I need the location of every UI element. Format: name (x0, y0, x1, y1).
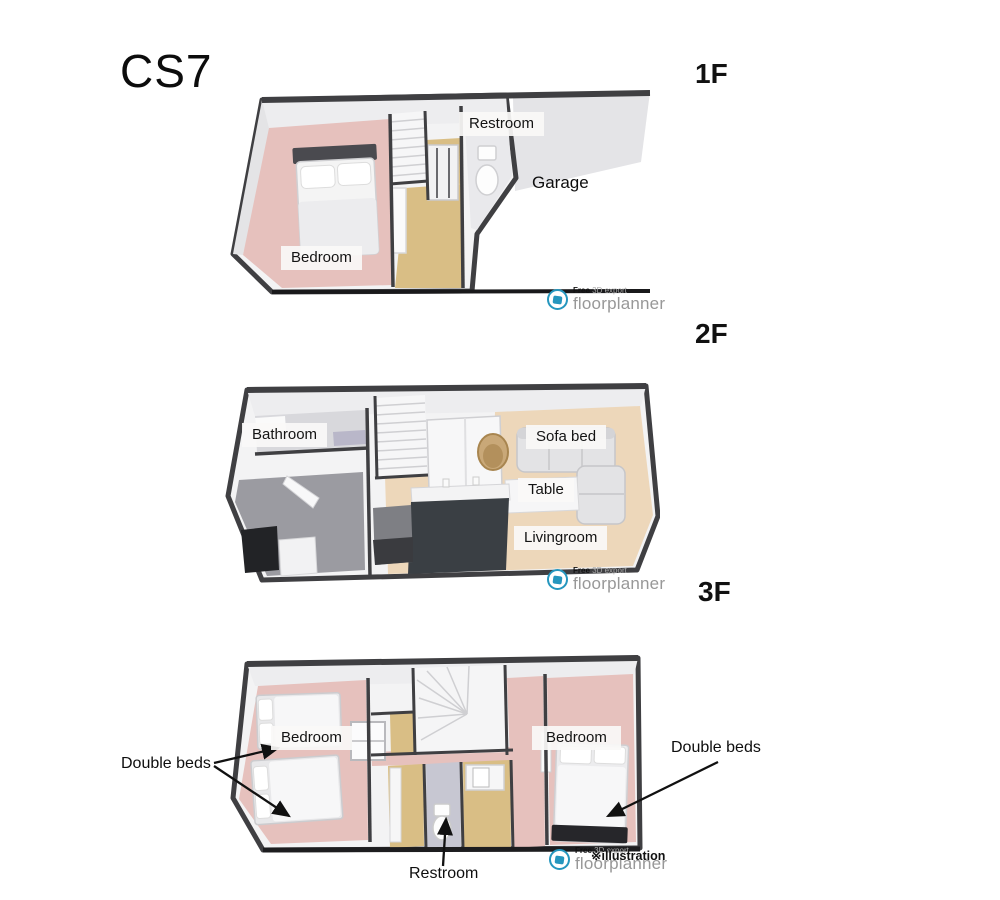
arrow-restroom (443, 819, 446, 866)
floor-label-3f: 3F (698, 576, 731, 608)
arrow-double-beds-lower (214, 766, 289, 816)
room-label-bedroom-3f-right: Bedroom (532, 726, 621, 750)
white-closet (279, 537, 317, 576)
floorplanner-logo-icon (547, 569, 568, 590)
stairs-2f (375, 395, 427, 478)
floorplanner-logo-icon (547, 289, 568, 310)
room-label-bedroom-1f: Bedroom (281, 246, 362, 270)
annotation-double-beds-left: Double beds (121, 755, 211, 773)
page-title: CS7 (120, 44, 212, 98)
floorplanner-watermark-1f: Free 3D export floorplanner (547, 286, 665, 313)
floorplanner-logo-icon (549, 849, 570, 870)
floorplan-1f (225, 88, 660, 313)
annotation-restroom-3f: Restroom (409, 865, 478, 883)
bathroom-counter (333, 430, 366, 446)
arrow-double-beds-right (608, 762, 718, 816)
dark-box (241, 526, 279, 573)
floorplanner-glyph (552, 295, 562, 304)
floorplanner-watermark-2f: Free 3D export floorplanner (547, 566, 665, 593)
room-label-sofa-bed: Sofa bed (526, 425, 606, 449)
floor-label-2f: 2F (695, 318, 728, 350)
room-label-garage: Garage (532, 173, 589, 193)
floorplanner-glyph (554, 855, 564, 864)
floorplan-page: CS7 1F 2F 3F (0, 0, 1000, 900)
ladder (428, 145, 458, 200)
room-label-bathroom: Bathroom (242, 423, 327, 447)
floorplanner-brand-text: floorplanner (573, 575, 665, 593)
room-label-bedroom-3f-left: Bedroom (271, 726, 352, 750)
arrow-double-beds-upper (214, 748, 278, 763)
annotation-double-beds-right: Double beds (671, 739, 761, 757)
floor-label-1f: 1F (695, 58, 728, 90)
room-label-restroom-1f: Restroom (459, 112, 544, 136)
round-chair (478, 434, 508, 470)
stairs-1f (390, 111, 426, 185)
floorplanner-brand-text: floorplanner (573, 295, 665, 313)
bed-1f (292, 144, 382, 258)
room-label-table: Table (518, 478, 574, 502)
illustration-label: ※illustration (591, 848, 665, 863)
toilet-1f (476, 146, 498, 195)
room-label-livingroom: Livingroom (514, 526, 607, 550)
hall-wardrobe (392, 188, 406, 253)
floorplanner-glyph (552, 575, 562, 584)
